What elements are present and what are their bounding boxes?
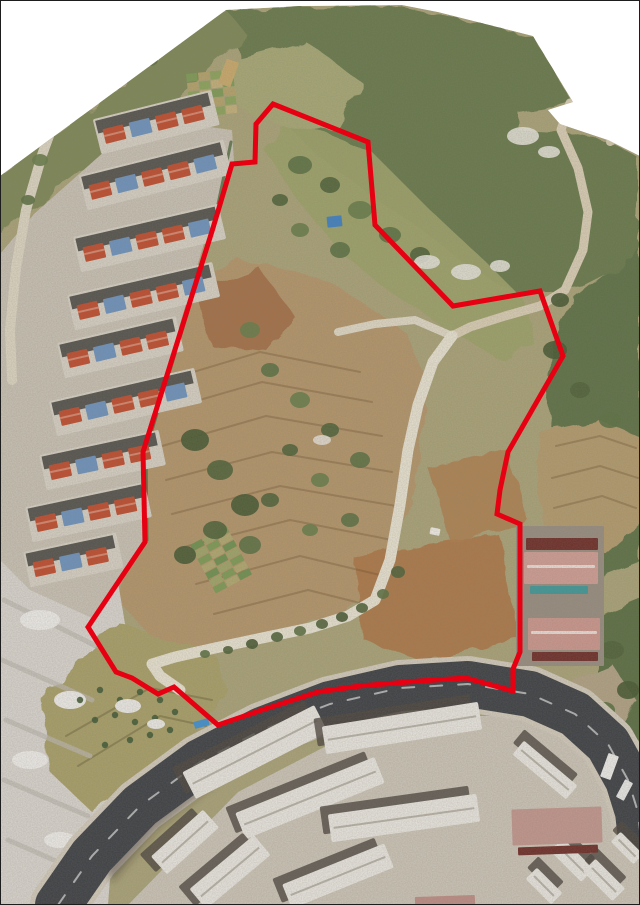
orthophoto-figure bbox=[0, 0, 640, 905]
tree bbox=[51, 113, 69, 127]
photo-grain bbox=[0, 0, 640, 905]
tree bbox=[82, 89, 98, 101]
dirt-road-stub-right bbox=[610, 128, 640, 142]
aerial-orthophoto bbox=[0, 0, 640, 905]
tree bbox=[112, 69, 128, 81]
